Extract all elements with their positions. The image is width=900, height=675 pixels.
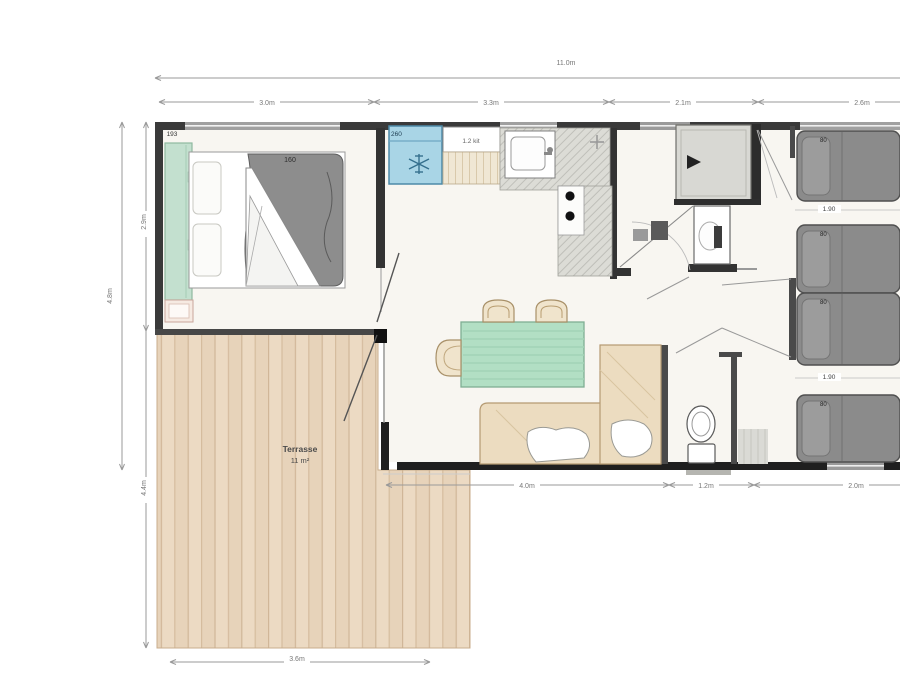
svg-text:1.90: 1.90 [823,206,836,213]
svg-text:80: 80 [820,138,827,144]
svg-text:80: 80 [820,232,827,238]
svg-text:2.1m: 2.1m [675,100,691,107]
svg-text:11.0m: 11.0m [557,60,576,67]
svg-text:160: 160 [284,157,296,164]
svg-text:80: 80 [820,300,827,306]
svg-text:2.6m: 2.6m [854,100,870,107]
svg-text:1.2 kit: 1.2 kit [462,138,480,145]
svg-text:1.90: 1.90 [823,374,836,381]
svg-text:3.6m: 3.6m [289,656,305,663]
svg-text:3.0m: 3.0m [259,100,275,107]
svg-text:4.4m: 4.4m [141,480,148,496]
svg-text:260: 260 [391,131,402,138]
svg-text:1.2m: 1.2m [698,483,714,490]
svg-text:11 m²: 11 m² [291,456,310,465]
svg-text:2.0m: 2.0m [848,483,864,490]
svg-text:2.9m: 2.9m [141,214,148,230]
svg-text:3.3m: 3.3m [483,100,499,107]
svg-text:4.0m: 4.0m [519,483,535,490]
svg-text:4.8m: 4.8m [107,288,114,304]
svg-text:Terrasse: Terrasse [283,444,318,454]
svg-text:80: 80 [820,402,827,408]
svg-text:193: 193 [167,131,178,138]
